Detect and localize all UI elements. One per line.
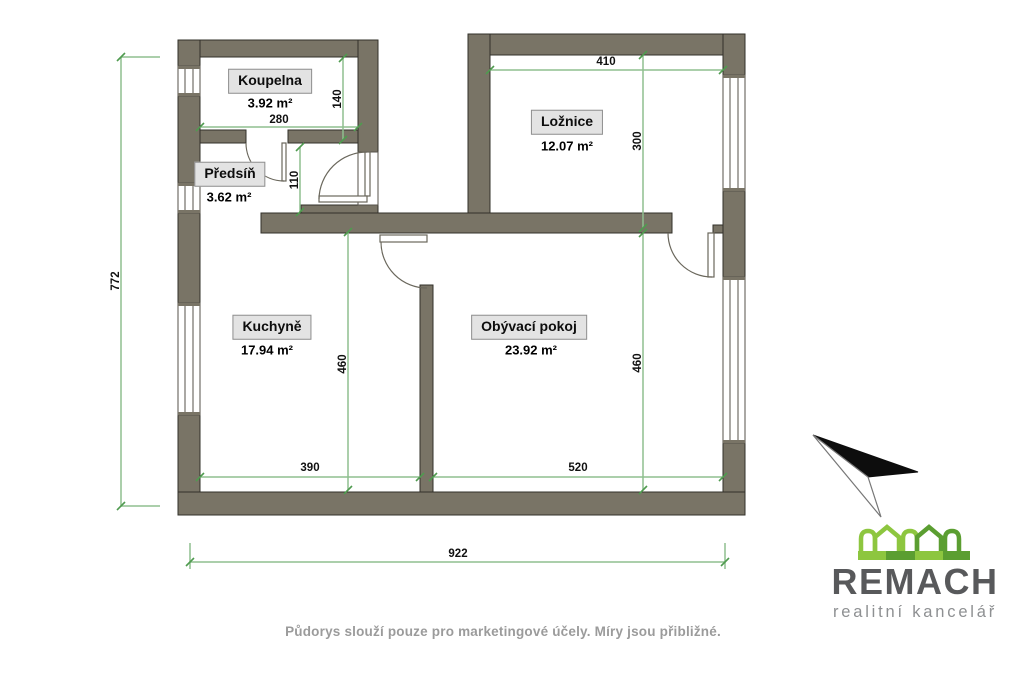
room-area-obyvaci-pokoj: 23.92 m² (505, 343, 557, 358)
dim-loznice-depth: 300 (632, 131, 644, 150)
floor-plan-page: 280 140 110 410 300 772 460 460 390 520 … (0, 0, 1024, 683)
dim-koupelna-width: 280 (269, 114, 288, 126)
dim-hall-door: 110 (289, 171, 301, 190)
window-sills (178, 66, 745, 443)
room-area-kuchyne: 17.94 m² (241, 343, 293, 358)
room-area-predsin: 3.62 m² (207, 190, 252, 205)
room-area-koupelna: 3.92 m² (248, 96, 293, 111)
room-label-predsin: Předsíň (194, 162, 265, 187)
room-label-loznice: Ložnice (531, 110, 603, 135)
dim-obyvaci-depth: 460 (632, 353, 644, 372)
disclaimer-text: Půdorys slouží pouze pro marketingové úč… (0, 624, 1006, 639)
dim-bottom-total: 922 (448, 548, 467, 560)
north-arrow-icon (805, 428, 925, 523)
dim-loznice-width: 410 (596, 56, 615, 68)
room-label-obyvaci-pokoj: Obývací pokoj (471, 315, 587, 340)
room-label-kuchyne: Kuchyně (232, 315, 311, 340)
room-area-loznice: 12.07 m² (541, 139, 593, 154)
agency-logo: REMACH realitní kancelář (820, 524, 1010, 622)
dim-left-total: 772 (110, 271, 122, 290)
logo-tagline: realitní kancelář (820, 603, 1010, 622)
dim-koupelna-depth: 140 (332, 89, 344, 108)
logo-name: REMACH (820, 563, 1010, 601)
dim-obyvaci-width: 520 (568, 462, 587, 474)
logo-houses-icon (856, 524, 974, 562)
room-label-koupelna: Koupelna (228, 69, 312, 94)
windows-layer (178, 66, 745, 443)
dim-kuchyne-depth: 460 (337, 354, 349, 373)
dim-kuchyne-width: 390 (300, 462, 319, 474)
